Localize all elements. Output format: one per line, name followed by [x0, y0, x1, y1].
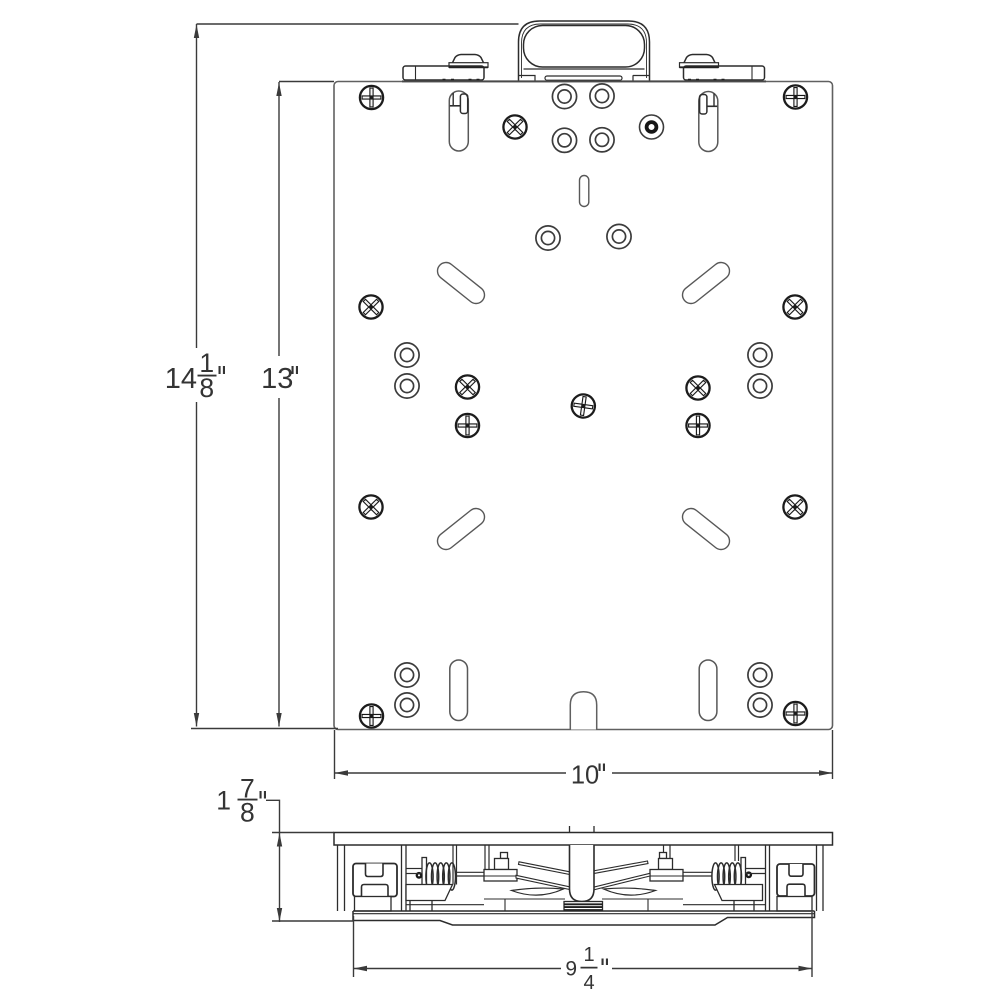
svg-text:10: 10	[571, 761, 599, 789]
svg-text:4: 4	[583, 972, 594, 994]
svg-text:1: 1	[216, 786, 231, 816]
svg-text:9: 9	[565, 958, 577, 981]
svg-text:8: 8	[240, 798, 255, 828]
svg-text:8: 8	[199, 373, 214, 403]
svg-text:1: 1	[583, 944, 594, 966]
svg-text:13: 13	[261, 363, 293, 395]
svg-text:14: 14	[165, 363, 197, 395]
